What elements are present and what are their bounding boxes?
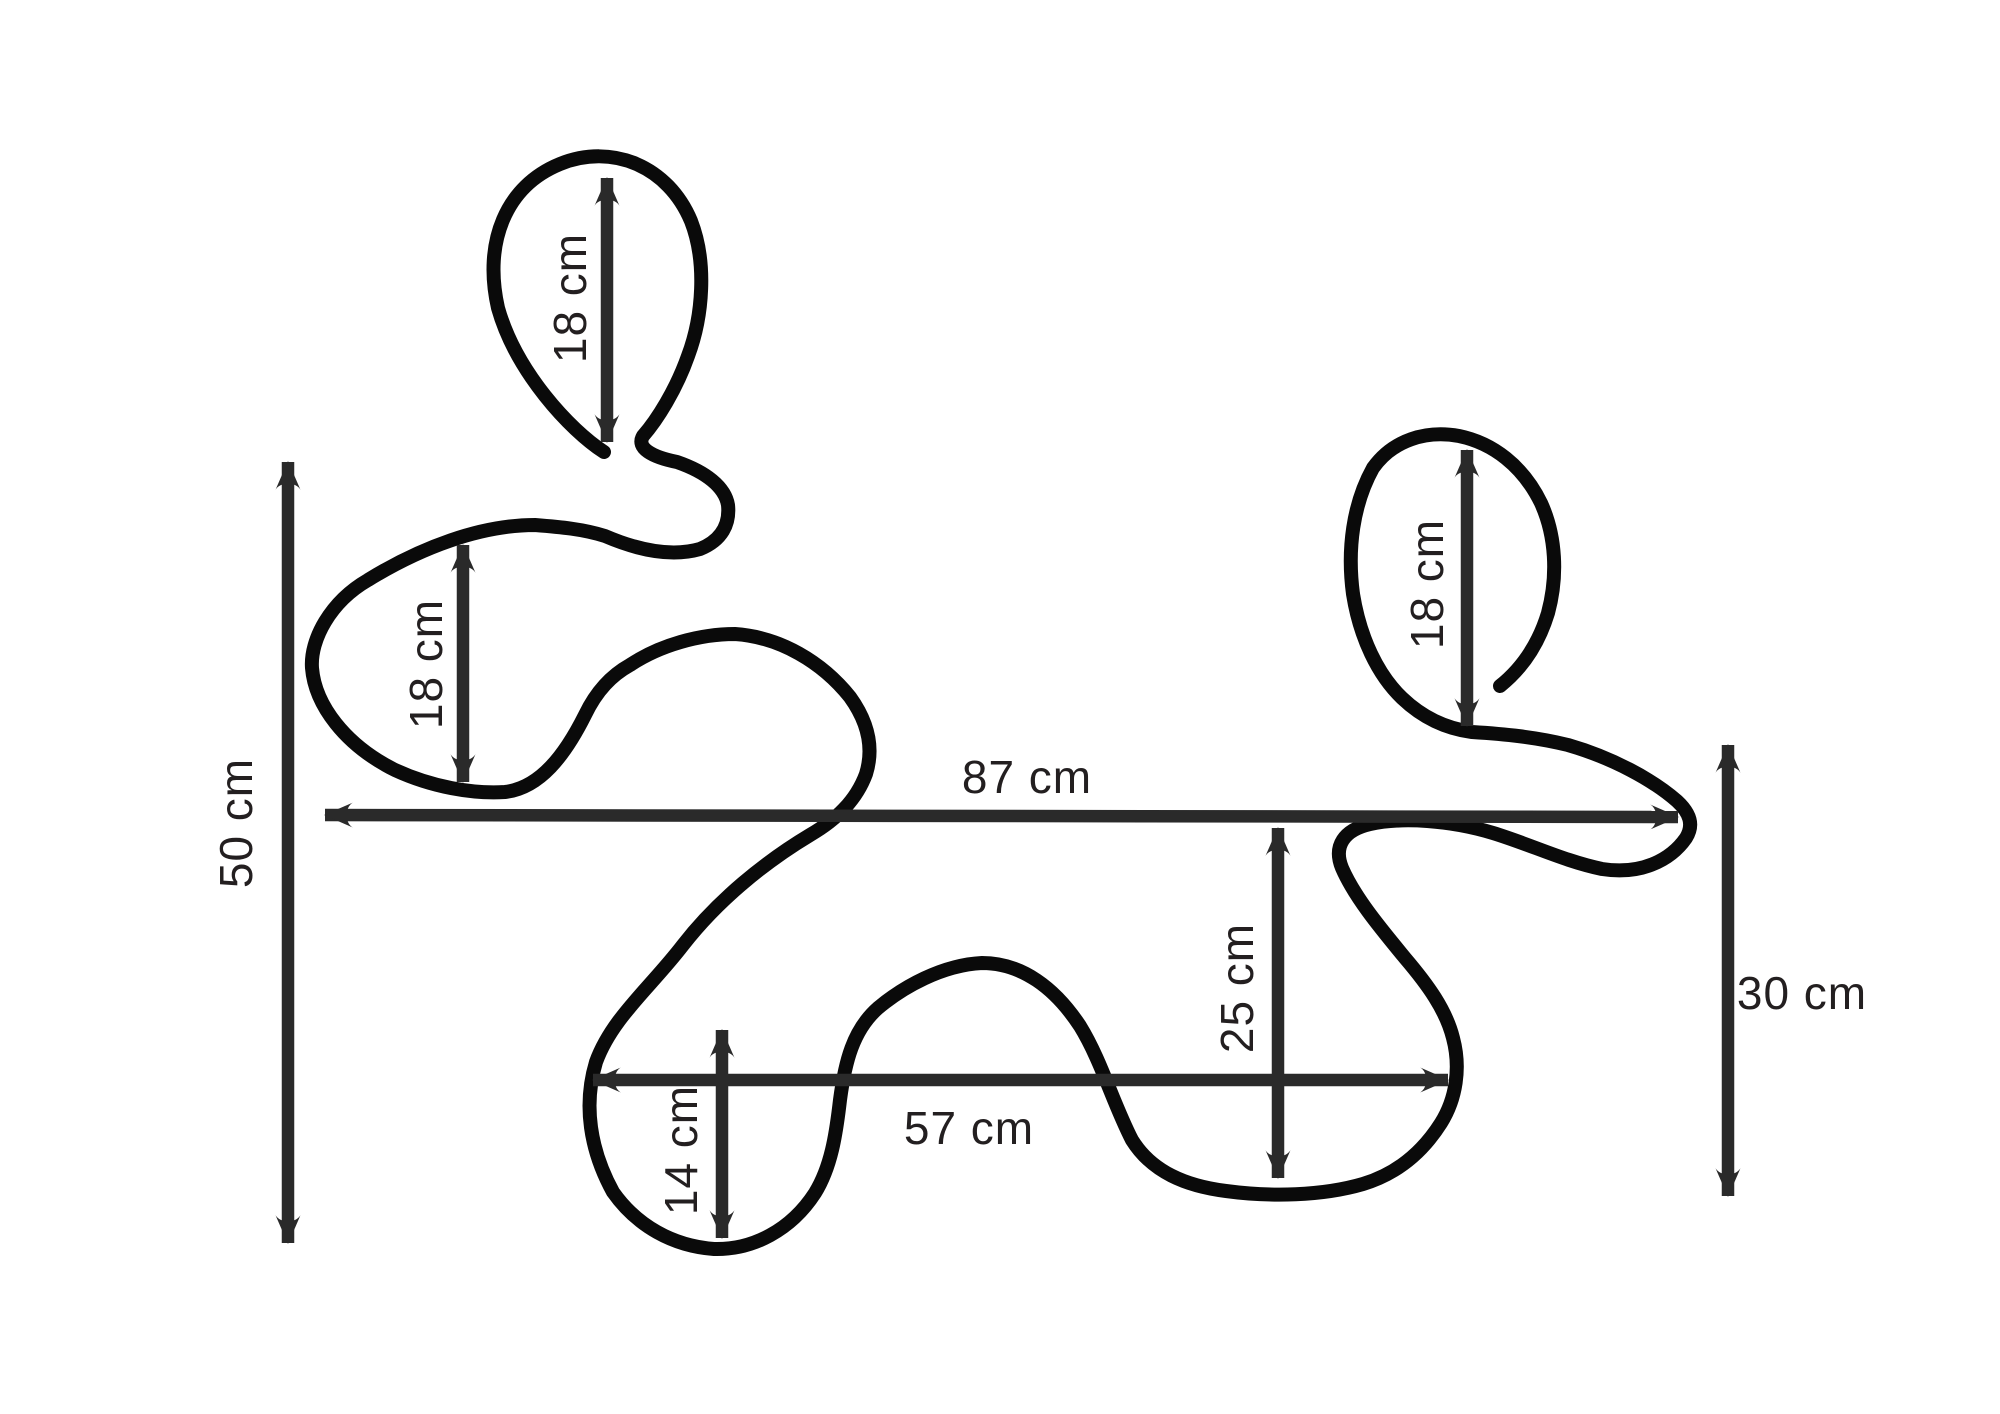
- diagram-canvas: 50 cm 18 cm 18 cm 18 cm 87 cm 25 cm: [0, 0, 2000, 1414]
- dim-label-18cm-right: 18 cm: [1401, 519, 1453, 649]
- dim-label-30cm: 30 cm: [1737, 967, 1867, 1019]
- dim-label-18cm-top-left: 18 cm: [544, 233, 596, 363]
- dimension-right-height: 30 cm: [1728, 745, 1867, 1196]
- dimension-bottom-lobe-height: 14 cm: [655, 1030, 722, 1238]
- dim-label-87cm: 87 cm: [962, 751, 1092, 803]
- dim-label-25cm: 25 cm: [1211, 923, 1263, 1053]
- dimension-right-lobe-height: 18 cm: [1401, 450, 1467, 726]
- dim-label-57cm: 57 cm: [904, 1102, 1034, 1154]
- dim-label-18cm-left: 18 cm: [400, 599, 452, 729]
- dim-line-87cm: [325, 815, 1678, 817]
- dimension-overall-height-left: 50 cm: [210, 462, 288, 1243]
- dim-label-14cm: 14 cm: [655, 1085, 707, 1215]
- dimension-left-lobe-height: 18 cm: [400, 545, 463, 782]
- dim-label-50cm: 50 cm: [210, 758, 262, 888]
- dimension-diagram: 50 cm 18 cm 18 cm 18 cm 87 cm 25 cm: [0, 0, 2000, 1414]
- dimension-inner-right-height: 25 cm: [1211, 828, 1278, 1178]
